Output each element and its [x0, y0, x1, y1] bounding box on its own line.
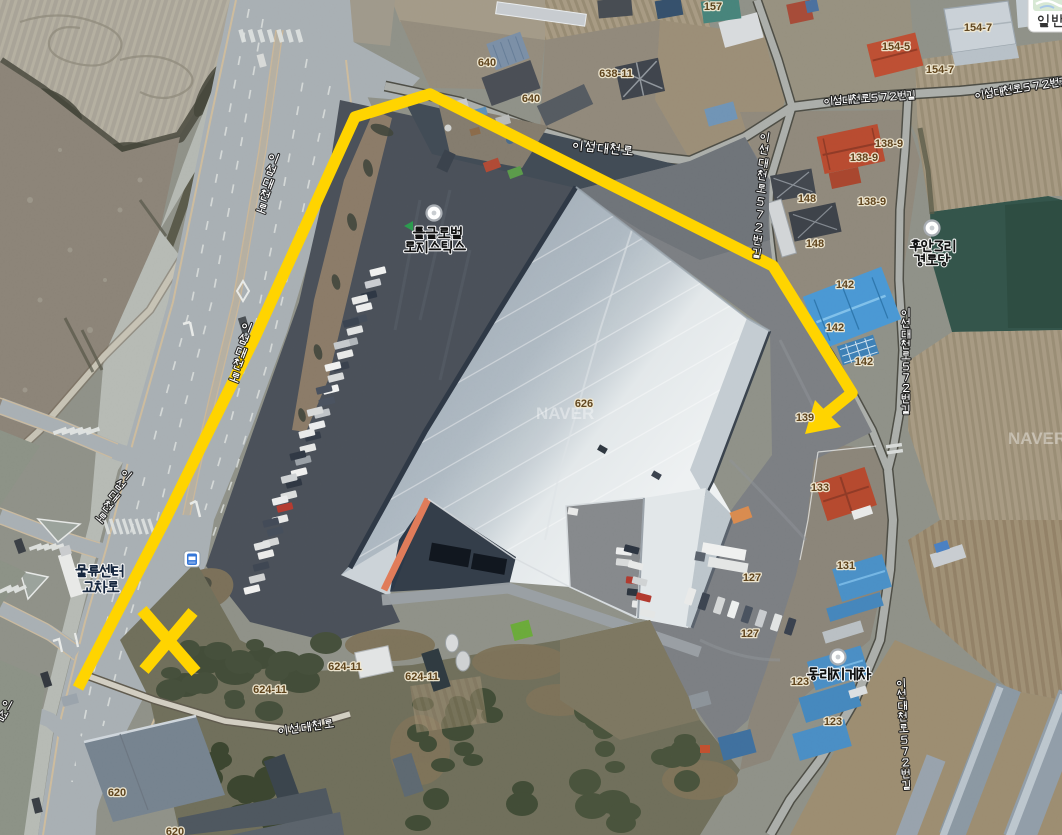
svg-text:624-11: 624-11 [253, 684, 287, 696]
svg-text:NAVER: NAVER [1008, 429, 1062, 448]
svg-text:640: 640 [522, 93, 540, 105]
svg-text:138-9: 138-9 [858, 196, 886, 208]
svg-text:620: 620 [108, 787, 126, 799]
svg-text:142: 142 [855, 356, 873, 368]
svg-text:624-11: 624-11 [328, 661, 362, 673]
svg-text:131: 131 [837, 560, 855, 572]
svg-text:640: 640 [478, 57, 496, 69]
svg-text:133: 133 [811, 482, 829, 494]
svg-text:626: 626 [575, 398, 593, 410]
svg-text:138-9: 138-9 [875, 138, 903, 150]
svg-text:142: 142 [826, 322, 844, 334]
svg-text:624-11: 624-11 [405, 671, 439, 683]
svg-text:638-11: 638-11 [599, 68, 633, 80]
svg-text:154-7: 154-7 [964, 22, 992, 34]
svg-text:148: 148 [806, 238, 824, 250]
svg-text:138-9: 138-9 [850, 152, 878, 164]
svg-text:157: 157 [704, 1, 722, 13]
svg-text:139: 139 [796, 412, 814, 424]
svg-text:127: 127 [741, 628, 759, 640]
svg-text:620: 620 [166, 826, 184, 835]
svg-text:123: 123 [791, 676, 809, 688]
svg-text:154-7: 154-7 [926, 64, 954, 76]
svg-text:148: 148 [798, 193, 816, 205]
svg-text:127: 127 [743, 572, 761, 584]
svg-text:123: 123 [824, 716, 842, 728]
svg-text:154-5: 154-5 [882, 41, 910, 53]
svg-text:142: 142 [836, 279, 854, 291]
